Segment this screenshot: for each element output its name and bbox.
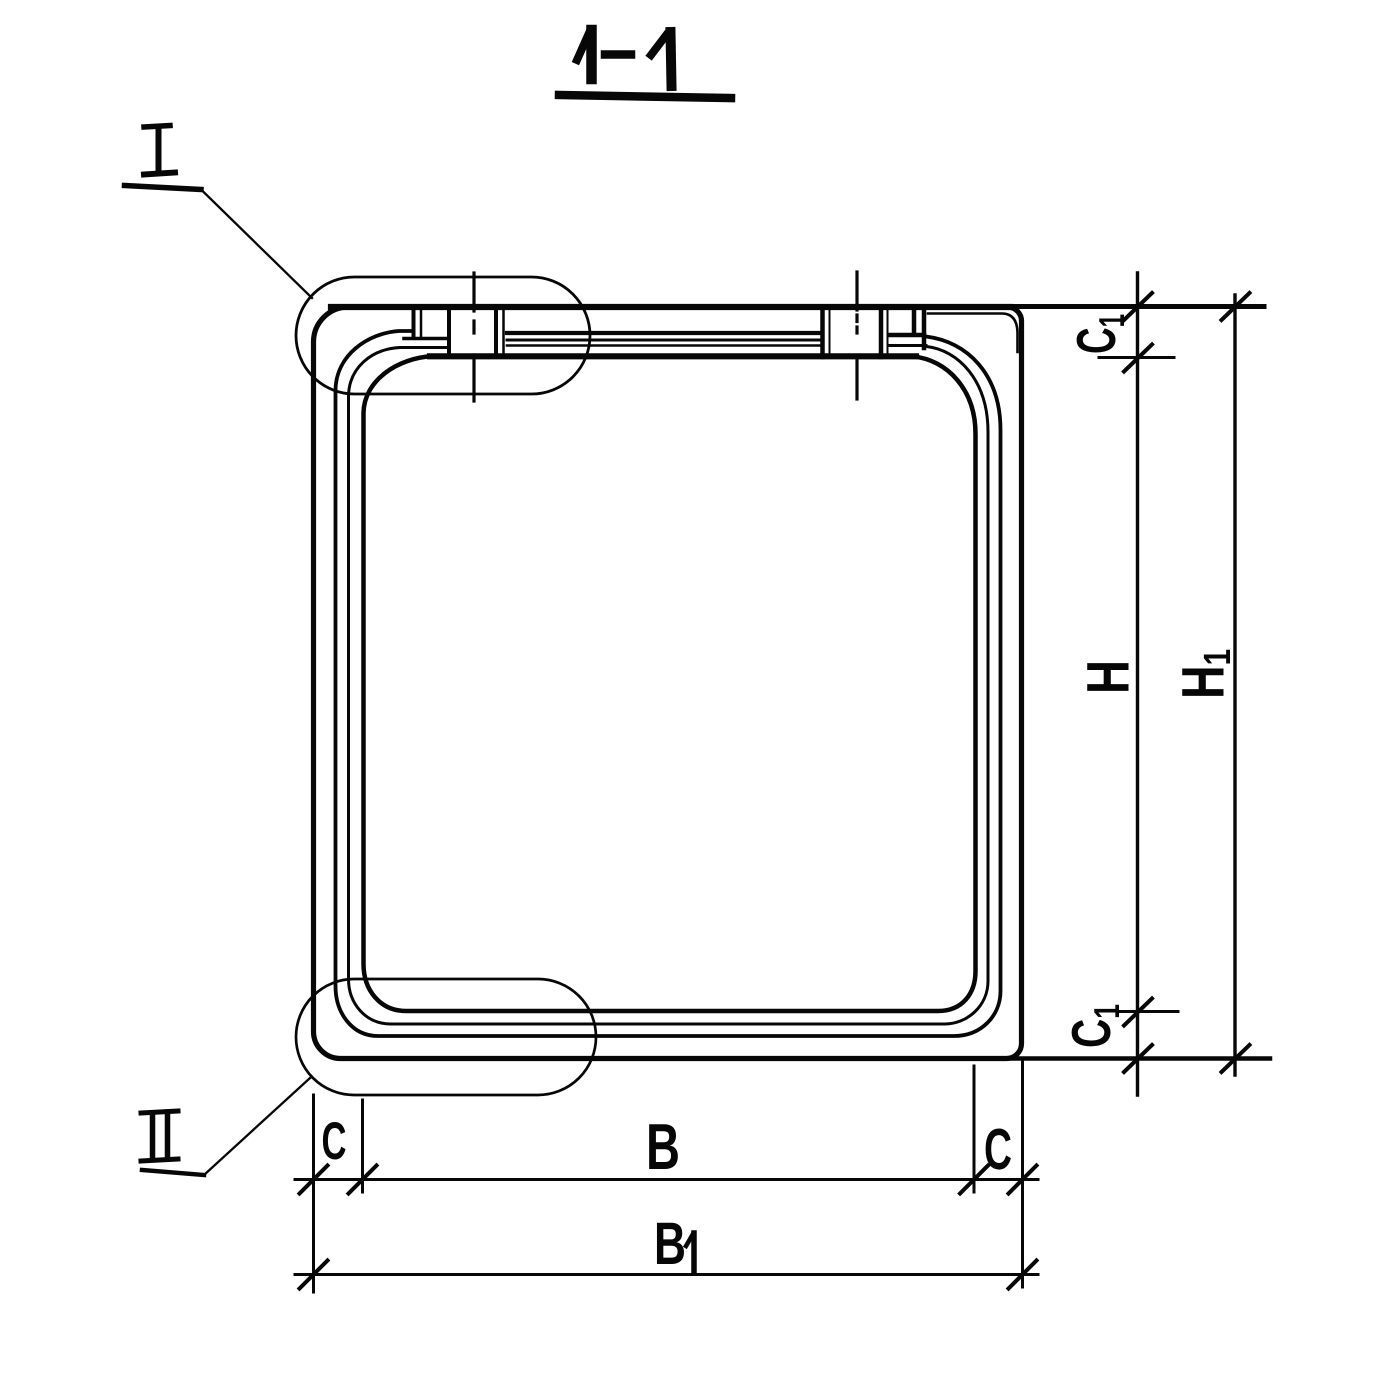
svg-text:B: B: [646, 1110, 680, 1183]
svg-text:C: C: [984, 1117, 1012, 1182]
svg-text:B: B: [654, 1210, 686, 1277]
svg-text:C: C: [322, 1112, 347, 1171]
svg-text:H: H: [1075, 660, 1142, 694]
